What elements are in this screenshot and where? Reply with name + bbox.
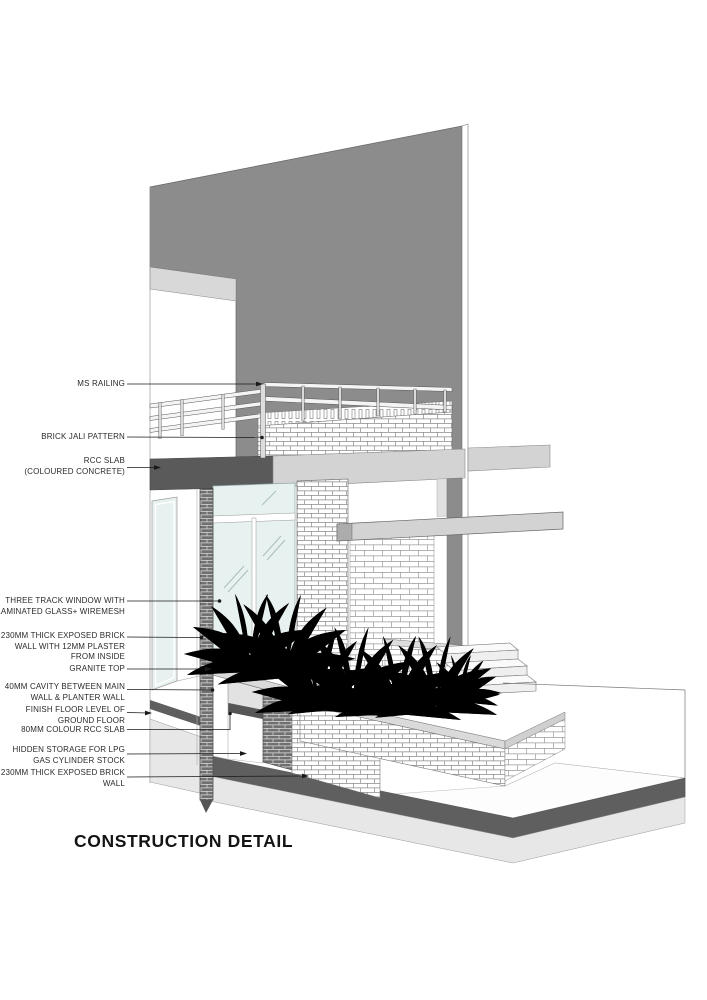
label-line: BRICK JALI PATTERN <box>41 432 125 443</box>
construction-detail-sheet: MS RAILING BRICK JALI PATTERN RCC SLAB (… <box>0 0 707 1000</box>
label-line: WALL <box>1 779 125 790</box>
label-line: (COLOURED CONCRETE) <box>24 467 125 478</box>
label-line: 230MM THICK EXPOSED BRICK <box>1 768 125 779</box>
label-hidden-storage: HIDDEN STORAGE FOR LPG GAS CYLINDER STOC… <box>12 745 125 766</box>
label-line: LAMINATED GLASS+ WIREMESH <box>0 607 125 618</box>
label-brick-wall-plaster: 230MM THICK EXPOSED BRICK WALL WITH 12MM… <box>1 631 125 663</box>
label-80mm-slab: 80MM COLOUR RCC SLAB <box>21 725 125 736</box>
label-line: RCC SLAB <box>24 456 125 467</box>
label-line: THREE TRACK WINDOW WITH <box>0 596 125 607</box>
label-granite-top: GRANITE TOP <box>69 664 125 675</box>
label-line: GRANITE TOP <box>69 664 125 675</box>
label-line: 230MM THICK EXPOSED BRICK <box>1 631 125 642</box>
label-rcc-slab: RCC SLAB (COLOURED CONCRETE) <box>24 456 125 477</box>
label-line: MS RAILING <box>77 379 125 390</box>
label-brick-wall-230: 230MM THICK EXPOSED BRICK WALL <box>1 768 125 789</box>
label-window: THREE TRACK WINDOW WITH LAMINATED GLASS+… <box>0 596 125 617</box>
label-line: WALL WITH 12MM PLASTER <box>1 642 125 653</box>
label-brick-jali: BRICK JALI PATTERN <box>41 432 125 443</box>
label-line: HIDDEN STORAGE FOR LPG <box>12 745 125 756</box>
label-line: 80MM COLOUR RCC SLAB <box>21 725 125 736</box>
label-ms-railing: MS RAILING <box>77 379 125 390</box>
label-ffl: FINISH FLOOR LEVEL OF GROUND FLOOR <box>26 705 125 726</box>
label-line: 40MM CAVITY BETWEEN MAIN <box>5 682 125 693</box>
label-line: FROM INSIDE <box>1 652 125 663</box>
label-cavity: 40MM CAVITY BETWEEN MAIN WALL & PLANTER … <box>5 682 125 703</box>
label-line: WALL & PLANTER WALL <box>5 693 125 704</box>
label-line: GAS CYLINDER STOCK <box>12 756 125 767</box>
drawing-title: CONSTRUCTION DETAIL <box>74 831 293 852</box>
label-line: FINISH FLOOR LEVEL OF <box>26 705 125 716</box>
